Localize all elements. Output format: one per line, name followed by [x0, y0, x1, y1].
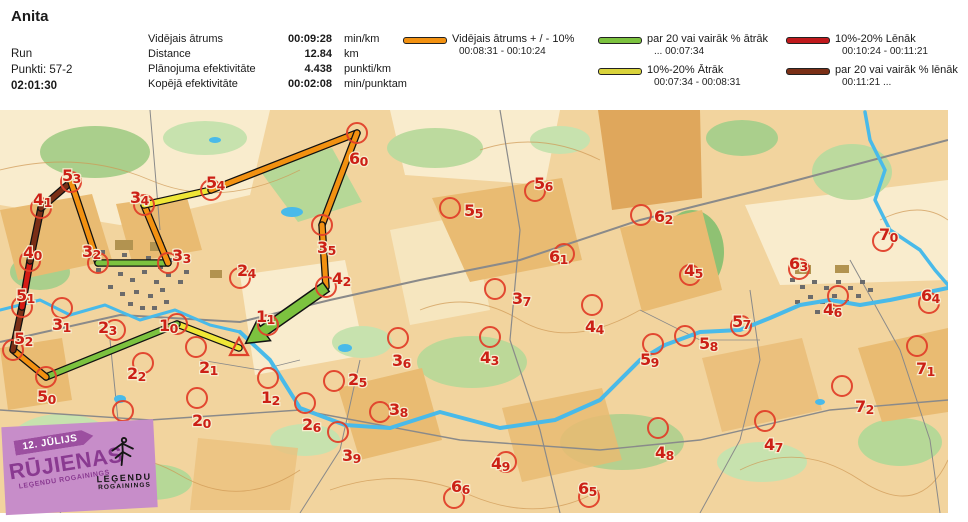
speed-legend: Vidējais ātrums + / - 10% 00:08:31 - 00:… — [0, 0, 968, 110]
legend-swatch-slower — [786, 37, 830, 44]
legend-swatch-average — [403, 37, 447, 44]
legend-label: 10%-20% Ātrāk — [647, 64, 741, 76]
legend-range: 00:11:21 ... — [835, 76, 958, 89]
brand-line2: ROGAININGS — [96, 481, 152, 491]
rogaining-logo-icon — [108, 436, 138, 467]
legend-swatch-much-faster — [598, 37, 642, 44]
route-map: 1032333435404142505152535460111220212223… — [0, 110, 948, 513]
legend-item-slower: 10%-20% Lēnāk 00:10:24 - 00:11:21 — [786, 33, 928, 58]
legend-label: par 20 vai vairāk % lēnāk — [835, 64, 958, 76]
legend-item-average: Vidējais ātrums + / - 10% 00:08:31 - 00:… — [403, 33, 574, 58]
legend-range: 00:10:24 - 00:11:21 — [835, 45, 928, 58]
legend-swatch-much-slower — [786, 68, 830, 75]
report-header: Anita Run Punkti: 57-2 02:01:30 Vidējais… — [0, 0, 968, 110]
legend-label: 10%-20% Lēnāk — [835, 33, 928, 45]
legend-range: 00:07:34 - 00:08:31 — [647, 76, 741, 89]
legend-item-faster: 10%-20% Ātrāk 00:07:34 - 00:08:31 — [598, 64, 741, 89]
event-logo-banner: 12. JŪLIJS RŪJIENAS LEĢENDU ROGAININGS L… — [1, 419, 157, 515]
legend-range: 00:08:31 - 00:10:24 — [452, 45, 574, 58]
legend-item-much-faster: par 20 vai vairāk % ātrāk ... 00:07:34 — [598, 33, 768, 58]
legend-range: ... 00:07:34 — [647, 45, 768, 58]
legend-label: par 20 vai vairāk % ātrāk — [647, 33, 768, 45]
rogaining-brand: LEĢENDU ROGAININGS — [94, 435, 153, 491]
legend-item-much-slower: par 20 vai vairāk % lēnāk 00:11:21 ... — [786, 64, 958, 89]
legend-swatch-faster — [598, 68, 642, 75]
legend-label: Vidējais ātrums + / - 10% — [452, 33, 574, 45]
